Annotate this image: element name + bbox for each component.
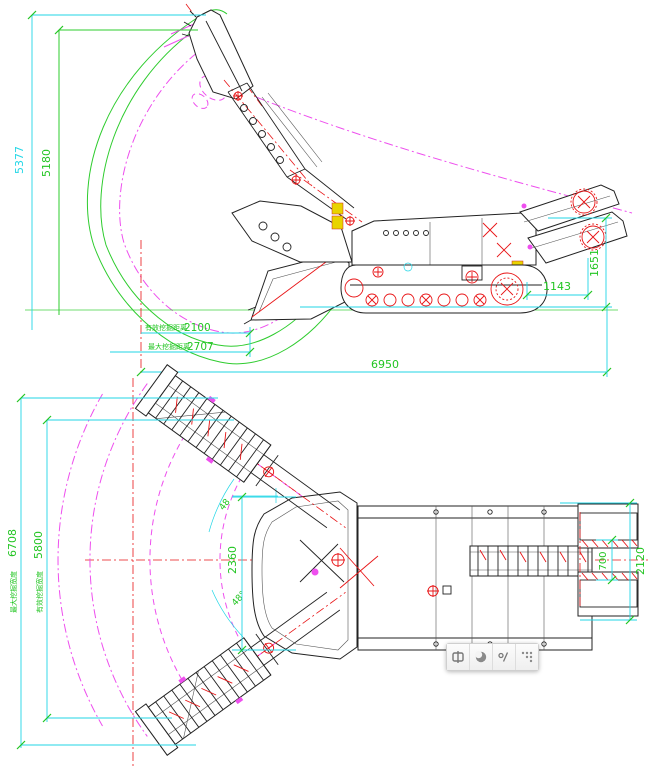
boom-arm <box>228 83 305 177</box>
dim-6950: 6950 <box>371 358 399 371</box>
boom-raised <box>182 4 362 226</box>
dim-5800-value: 5800 <box>32 531 45 559</box>
dots-grid-icon <box>519 649 535 665</box>
conveyor-plan <box>470 546 592 576</box>
dim-700: 700 <box>598 551 609 570</box>
frame-plan <box>358 506 592 650</box>
side-view: 5377 5180 有效挖掘距离 2100 最大挖掘距离 2707 6950 <box>13 4 632 377</box>
dim-5377: 5377 <box>13 146 26 174</box>
bucket <box>189 10 253 99</box>
top-view: 48 48° <box>6 365 648 766</box>
side-view-dimensions: 5377 5180 有效挖掘距离 2100 最大挖掘距离 2707 6950 <box>13 11 612 377</box>
reach-max-value: 2707 <box>187 341 214 353</box>
hydraulic-cylinder <box>262 93 322 167</box>
dim-2360: 2360 <box>226 546 239 574</box>
dim-6708-label: 最大挖掘宽度 <box>9 571 18 613</box>
swing-angle-lower-label: 48° <box>230 590 248 609</box>
moon-button[interactable] <box>470 644 493 670</box>
engineering-drawing: 5377 5180 有效挖掘距离 2100 最大挖掘距离 2707 6950 <box>0 0 650 766</box>
dim-5800-label: 有效挖掘宽度 <box>35 571 44 613</box>
degree-slash-button[interactable] <box>493 644 516 670</box>
reach-effective-label: 有效挖掘距离 <box>145 323 187 332</box>
crawler-track <box>341 263 547 313</box>
degree-slash-icon <box>496 649 512 665</box>
reach-max-label: 最大挖掘距离 <box>148 342 190 351</box>
dim-2120: 2120 <box>634 547 647 575</box>
floating-toolbar <box>446 643 539 671</box>
dim-5180: 5180 <box>40 149 53 177</box>
dim-6708-value: 6708 <box>6 529 19 557</box>
dots-grid-button[interactable] <box>516 644 538 670</box>
machine-body <box>352 213 536 265</box>
rect-split-button[interactable] <box>447 644 470 670</box>
reach-effective-value: 2100 <box>184 322 211 334</box>
moon-icon <box>473 649 489 665</box>
dim-1143: 1143 <box>543 280 571 293</box>
machine-side-view <box>182 4 627 324</box>
rect-split-icon <box>450 649 466 665</box>
cad-viewport: 5377 5180 有效挖掘距离 2100 最大挖掘距离 2707 6950 <box>0 0 650 766</box>
dim-1651: 1651 <box>588 249 601 277</box>
